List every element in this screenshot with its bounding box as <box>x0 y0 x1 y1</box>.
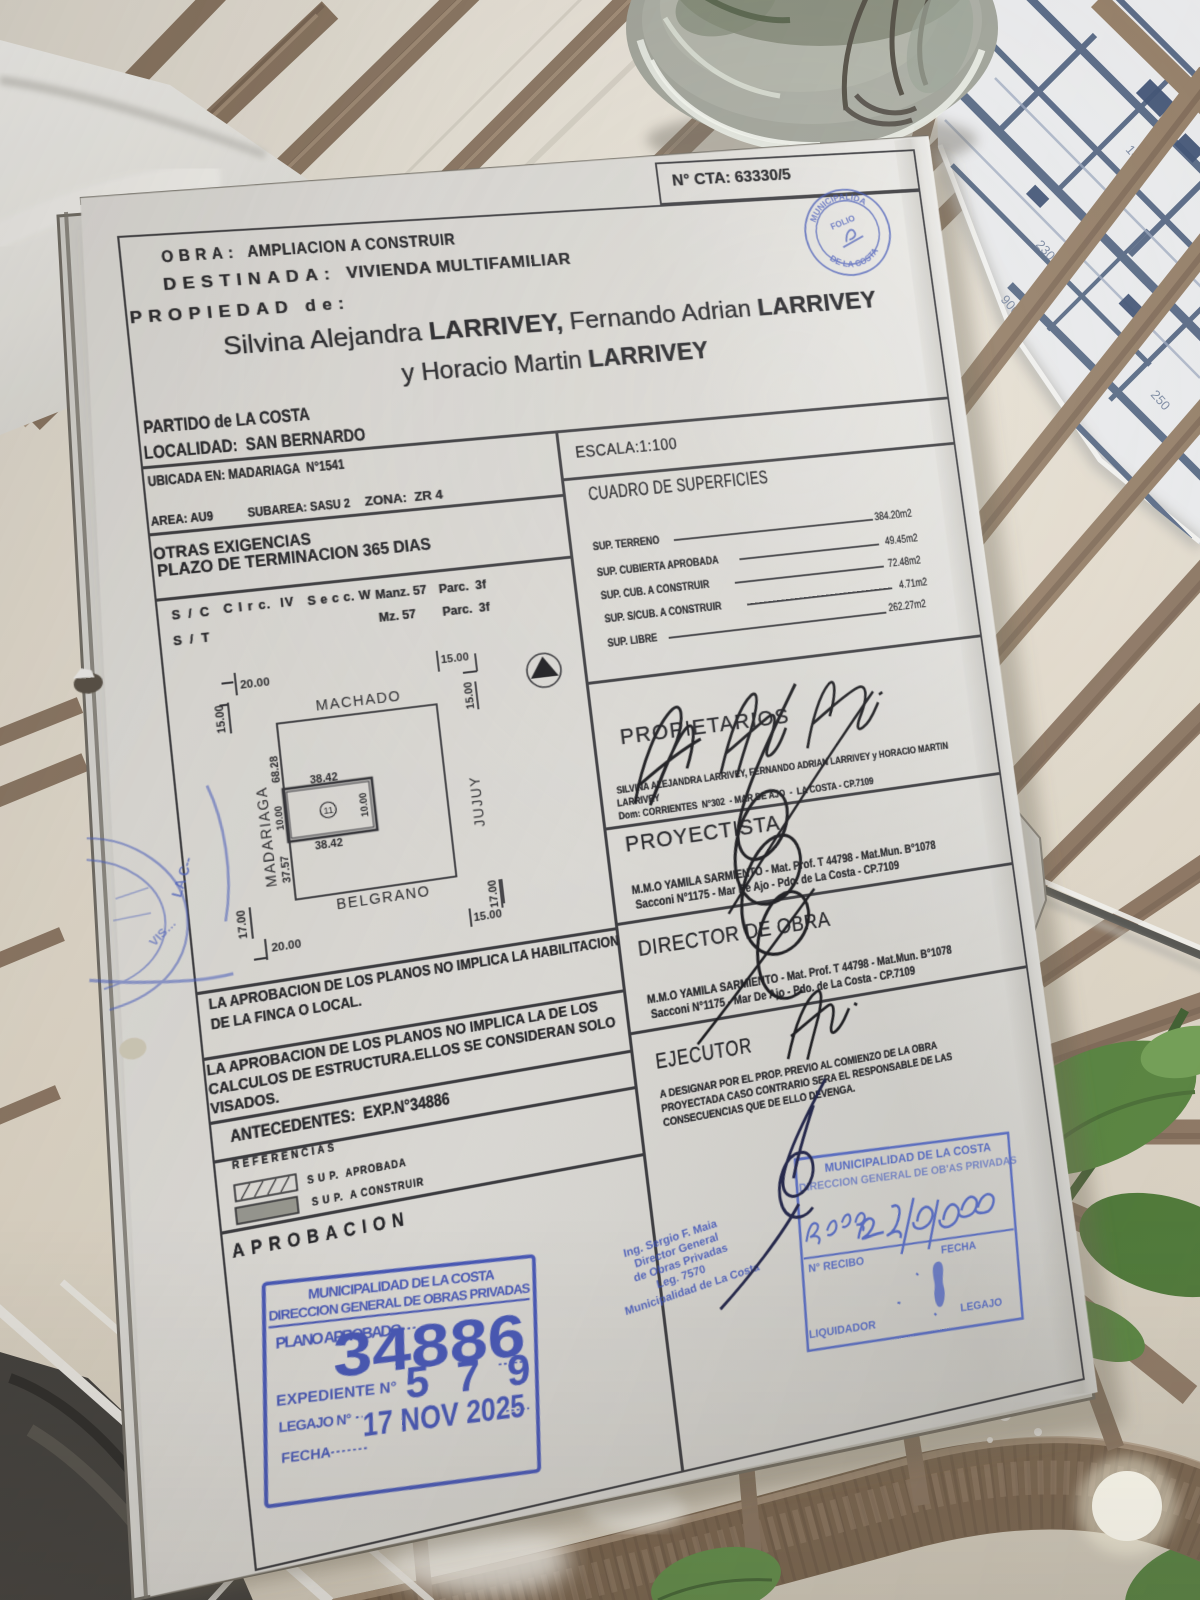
svg-text:10.00: 10.00 <box>358 791 372 817</box>
svg-text:JUJUY: JUJUY <box>467 774 489 827</box>
svg-text:BELGRANO: BELGRANO <box>336 884 432 913</box>
svg-text:MADARIAGA: MADARIAGA <box>254 785 281 888</box>
svg-text:15.00: 15.00 <box>473 908 502 924</box>
svg-text:N° RECIBO: N° RECIBO <box>808 1256 865 1276</box>
svg-text:LEGAJO: LEGAJO <box>960 1297 1003 1315</box>
svg-text:34886: 34886 <box>333 1302 527 1391</box>
svg-text:15.00: 15.00 <box>213 704 228 734</box>
svg-text:LEGAJO N°: LEGAJO N° <box>279 1411 352 1436</box>
svg-text:FECHA: FECHA <box>941 1240 977 1256</box>
svg-text:LIQUIDADOR: LIQUIDADOR <box>809 1319 877 1341</box>
svg-text:MUNICIPALIDAD: MUNICIPALIDAD <box>803 183 879 246</box>
svg-text:15.00: 15.00 <box>440 652 469 667</box>
svg-text:11: 11 <box>323 805 334 816</box>
svg-text:17.00: 17.00 <box>235 909 251 940</box>
svg-text:38.42: 38.42 <box>309 771 338 786</box>
svg-text:20.00: 20.00 <box>240 676 271 691</box>
svg-text:38.42: 38.42 <box>314 837 343 853</box>
svg-text:20.00: 20.00 <box>271 938 302 954</box>
svg-text:FECHA: FECHA <box>281 1444 331 1466</box>
svg-text:VIS…: VIS… <box>148 918 180 949</box>
svg-text:DE LA COSTA: DE LA COSTA <box>826 237 884 279</box>
